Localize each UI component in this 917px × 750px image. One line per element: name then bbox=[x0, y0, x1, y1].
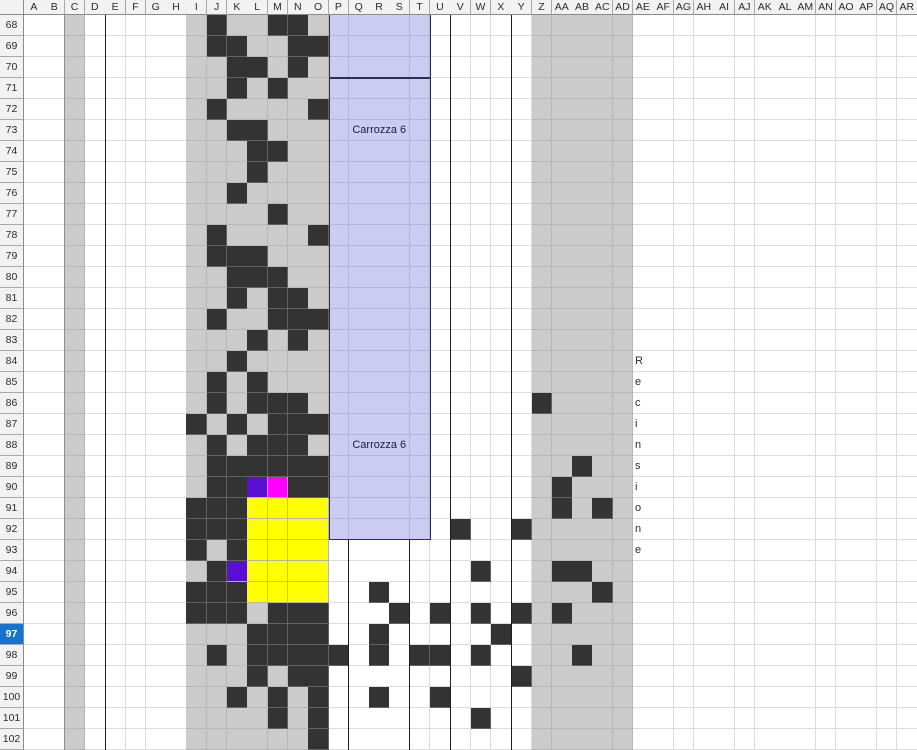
cell-J70[interactable] bbox=[207, 57, 228, 78]
cell-AI99[interactable] bbox=[714, 666, 735, 687]
cell-V68[interactable] bbox=[450, 15, 471, 36]
cell-AK75[interactable] bbox=[755, 162, 776, 183]
cell-AH100[interactable] bbox=[694, 687, 715, 708]
cell-AP71[interactable] bbox=[856, 78, 877, 99]
cell-J81[interactable] bbox=[207, 288, 228, 309]
cell-F89[interactable] bbox=[126, 456, 147, 477]
cell-AM84[interactable] bbox=[795, 351, 816, 372]
cell-Y77[interactable] bbox=[511, 204, 532, 225]
cell-AB92[interactable] bbox=[572, 519, 593, 540]
cell-L93[interactable] bbox=[247, 540, 268, 561]
cell-I88[interactable] bbox=[186, 435, 207, 456]
column-header-D[interactable]: D bbox=[85, 0, 106, 15]
cell-A101[interactable] bbox=[24, 708, 45, 729]
cell-AP95[interactable] bbox=[856, 582, 877, 603]
cell-D102[interactable] bbox=[85, 729, 106, 750]
cell-Q93[interactable] bbox=[349, 540, 370, 561]
cell-AE70[interactable] bbox=[633, 57, 654, 78]
cell-AQ98[interactable] bbox=[877, 645, 898, 666]
cell-AD70[interactable] bbox=[613, 57, 634, 78]
cell-C74[interactable] bbox=[65, 141, 86, 162]
cell-AE81[interactable] bbox=[633, 288, 654, 309]
cell-AP91[interactable] bbox=[856, 498, 877, 519]
cell-AC75[interactable] bbox=[592, 162, 613, 183]
cell-Y73[interactable] bbox=[511, 120, 532, 141]
cell-B75[interactable] bbox=[44, 162, 65, 183]
cell-Y96[interactable] bbox=[511, 603, 532, 624]
cell-I75[interactable] bbox=[186, 162, 207, 183]
cell-V83[interactable] bbox=[450, 330, 471, 351]
cell-AM69[interactable] bbox=[795, 36, 816, 57]
cell-H92[interactable] bbox=[166, 519, 187, 540]
cell-A83[interactable] bbox=[24, 330, 45, 351]
cell-R99[interactable] bbox=[369, 666, 390, 687]
cell-A78[interactable] bbox=[24, 225, 45, 246]
cell-G92[interactable] bbox=[146, 519, 167, 540]
cell-AB99[interactable] bbox=[572, 666, 593, 687]
cell-H86[interactable] bbox=[166, 393, 187, 414]
cell-AP70[interactable] bbox=[856, 57, 877, 78]
cell-AJ79[interactable] bbox=[735, 246, 756, 267]
cell-AQ78[interactable] bbox=[877, 225, 898, 246]
cell-C93[interactable] bbox=[65, 540, 86, 561]
cell-G85[interactable] bbox=[146, 372, 167, 393]
cell-AJ82[interactable] bbox=[735, 309, 756, 330]
column-header-X[interactable]: X bbox=[491, 0, 512, 15]
cell-E74[interactable] bbox=[105, 141, 126, 162]
cell-H101[interactable] bbox=[166, 708, 187, 729]
cell-Z96[interactable] bbox=[532, 603, 553, 624]
cell-AQ75[interactable] bbox=[877, 162, 898, 183]
cell-AE76[interactable] bbox=[633, 183, 654, 204]
cell-AQ68[interactable] bbox=[877, 15, 898, 36]
cell-AI74[interactable] bbox=[714, 141, 735, 162]
cell-AA74[interactable] bbox=[552, 141, 573, 162]
row-header-77[interactable]: 77 bbox=[0, 204, 24, 225]
cell-X75[interactable] bbox=[491, 162, 512, 183]
cell-AB90[interactable] bbox=[572, 477, 593, 498]
cell-AL71[interactable] bbox=[775, 78, 796, 99]
cell-AM85[interactable] bbox=[795, 372, 816, 393]
cell-AO81[interactable] bbox=[836, 288, 857, 309]
cell-K82[interactable] bbox=[227, 309, 248, 330]
cell-AC95[interactable] bbox=[592, 582, 613, 603]
cell-AI82[interactable] bbox=[714, 309, 735, 330]
cell-Y86[interactable] bbox=[511, 393, 532, 414]
cell-D76[interactable] bbox=[85, 183, 106, 204]
cell-AJ87[interactable] bbox=[735, 414, 756, 435]
cell-AR94[interactable] bbox=[897, 561, 917, 582]
cell-L71[interactable] bbox=[247, 78, 268, 99]
cell-AK88[interactable] bbox=[755, 435, 776, 456]
cell-AC102[interactable] bbox=[592, 729, 613, 750]
cell-N88[interactable] bbox=[288, 435, 309, 456]
row-header-85[interactable]: 85 bbox=[0, 372, 24, 393]
cell-H94[interactable] bbox=[166, 561, 187, 582]
row-header-101[interactable]: 101 bbox=[0, 708, 24, 729]
cell-O73[interactable] bbox=[308, 120, 329, 141]
cell-AF85[interactable] bbox=[653, 372, 674, 393]
cell-AK73[interactable] bbox=[755, 120, 776, 141]
cell-AM77[interactable] bbox=[795, 204, 816, 225]
cell-B90[interactable] bbox=[44, 477, 65, 498]
cell-B91[interactable] bbox=[44, 498, 65, 519]
cell-B76[interactable] bbox=[44, 183, 65, 204]
cell-AB70[interactable] bbox=[572, 57, 593, 78]
cell-U95[interactable] bbox=[430, 582, 451, 603]
cell-AP101[interactable] bbox=[856, 708, 877, 729]
cell-M79[interactable] bbox=[268, 246, 289, 267]
cell-M83[interactable] bbox=[268, 330, 289, 351]
cell-H78[interactable] bbox=[166, 225, 187, 246]
cell-S96[interactable] bbox=[389, 603, 410, 624]
cell-AN83[interactable] bbox=[816, 330, 837, 351]
cell-AI84[interactable] bbox=[714, 351, 735, 372]
cell-AI86[interactable] bbox=[714, 393, 735, 414]
cell-AB69[interactable] bbox=[572, 36, 593, 57]
cell-Y102[interactable] bbox=[511, 729, 532, 750]
cell-F76[interactable] bbox=[126, 183, 147, 204]
cell-U71[interactable] bbox=[430, 78, 451, 99]
row-header-92[interactable]: 92 bbox=[0, 519, 24, 540]
cell-A86[interactable] bbox=[24, 393, 45, 414]
cell-AP80[interactable] bbox=[856, 267, 877, 288]
cell-AG75[interactable] bbox=[674, 162, 695, 183]
cell-B71[interactable] bbox=[44, 78, 65, 99]
row-header-81[interactable]: 81 bbox=[0, 288, 24, 309]
cell-AI102[interactable] bbox=[714, 729, 735, 750]
cell-AA79[interactable] bbox=[552, 246, 573, 267]
cell-X70[interactable] bbox=[491, 57, 512, 78]
cell-AG73[interactable] bbox=[674, 120, 695, 141]
cell-Z83[interactable] bbox=[532, 330, 553, 351]
cell-I98[interactable] bbox=[186, 645, 207, 666]
cell-W83[interactable] bbox=[471, 330, 492, 351]
cell-AA73[interactable] bbox=[552, 120, 573, 141]
row-header-73[interactable]: 73 bbox=[0, 120, 24, 141]
cell-W102[interactable] bbox=[471, 729, 492, 750]
cell-S98[interactable] bbox=[389, 645, 410, 666]
cell-L98[interactable] bbox=[247, 645, 268, 666]
cell-V88[interactable] bbox=[450, 435, 471, 456]
cell-AO94[interactable] bbox=[836, 561, 857, 582]
cell-K90[interactable] bbox=[227, 477, 248, 498]
cell-AN73[interactable] bbox=[816, 120, 837, 141]
cell-U69[interactable] bbox=[430, 36, 451, 57]
cell-AA95[interactable] bbox=[552, 582, 573, 603]
cell-AG90[interactable] bbox=[674, 477, 695, 498]
cell-C87[interactable] bbox=[65, 414, 86, 435]
column-header-Y[interactable]: Y bbox=[511, 0, 532, 15]
cell-AR83[interactable] bbox=[897, 330, 917, 351]
cell-U100[interactable] bbox=[430, 687, 451, 708]
cell-G76[interactable] bbox=[146, 183, 167, 204]
cell-AL77[interactable] bbox=[775, 204, 796, 225]
cell-AH85[interactable] bbox=[694, 372, 715, 393]
cell-D80[interactable] bbox=[85, 267, 106, 288]
cell-F77[interactable] bbox=[126, 204, 147, 225]
cell-AK100[interactable] bbox=[755, 687, 776, 708]
cell-Y93[interactable] bbox=[511, 540, 532, 561]
cell-AN94[interactable] bbox=[816, 561, 837, 582]
cell-AB82[interactable] bbox=[572, 309, 593, 330]
cell-AF101[interactable] bbox=[653, 708, 674, 729]
cell-B74[interactable] bbox=[44, 141, 65, 162]
cell-B100[interactable] bbox=[44, 687, 65, 708]
cell-AR82[interactable] bbox=[897, 309, 917, 330]
cell-S102[interactable] bbox=[389, 729, 410, 750]
cell-U97[interactable] bbox=[430, 624, 451, 645]
cell-AF73[interactable] bbox=[653, 120, 674, 141]
cell-V92[interactable] bbox=[450, 519, 471, 540]
cell-F88[interactable] bbox=[126, 435, 147, 456]
cell-AK89[interactable] bbox=[755, 456, 776, 477]
cell-V101[interactable] bbox=[450, 708, 471, 729]
cell-H89[interactable] bbox=[166, 456, 187, 477]
cell-F74[interactable] bbox=[126, 141, 147, 162]
cell-AD83[interactable] bbox=[613, 330, 634, 351]
cell-D78[interactable] bbox=[85, 225, 106, 246]
cell-AP76[interactable] bbox=[856, 183, 877, 204]
cell-Y97[interactable] bbox=[511, 624, 532, 645]
cell-AA81[interactable] bbox=[552, 288, 573, 309]
cell-J73[interactable] bbox=[207, 120, 228, 141]
cell-M94[interactable] bbox=[268, 561, 289, 582]
cell-AC89[interactable] bbox=[592, 456, 613, 477]
cell-W76[interactable] bbox=[471, 183, 492, 204]
cell-AN99[interactable] bbox=[816, 666, 837, 687]
cell-Y71[interactable] bbox=[511, 78, 532, 99]
cell-AH68[interactable] bbox=[694, 15, 715, 36]
cell-Z71[interactable] bbox=[532, 78, 553, 99]
cell-H74[interactable] bbox=[166, 141, 187, 162]
cell-G74[interactable] bbox=[146, 141, 167, 162]
cell-AC84[interactable] bbox=[592, 351, 613, 372]
cell-W73[interactable] bbox=[471, 120, 492, 141]
cell-F90[interactable] bbox=[126, 477, 147, 498]
cell-N91[interactable] bbox=[288, 498, 309, 519]
cell-Q97[interactable] bbox=[349, 624, 370, 645]
cell-H85[interactable] bbox=[166, 372, 187, 393]
cell-P102[interactable] bbox=[329, 729, 350, 750]
cell-E97[interactable] bbox=[105, 624, 126, 645]
cell-D74[interactable] bbox=[85, 141, 106, 162]
cell-AC85[interactable] bbox=[592, 372, 613, 393]
cell-U75[interactable] bbox=[430, 162, 451, 183]
cell-C75[interactable] bbox=[65, 162, 86, 183]
cell-Z92[interactable] bbox=[532, 519, 553, 540]
cell-B79[interactable] bbox=[44, 246, 65, 267]
cell-AH81[interactable] bbox=[694, 288, 715, 309]
cell-AN88[interactable] bbox=[816, 435, 837, 456]
cell-AF100[interactable] bbox=[653, 687, 674, 708]
cell-AQ76[interactable] bbox=[877, 183, 898, 204]
cell-AH77[interactable] bbox=[694, 204, 715, 225]
cell-AB80[interactable] bbox=[572, 267, 593, 288]
cell-AN100[interactable] bbox=[816, 687, 837, 708]
cell-AE74[interactable] bbox=[633, 141, 654, 162]
cell-AI70[interactable] bbox=[714, 57, 735, 78]
cell-O99[interactable] bbox=[308, 666, 329, 687]
cell-AD92[interactable] bbox=[613, 519, 634, 540]
cell-H102[interactable] bbox=[166, 729, 187, 750]
cell-V98[interactable] bbox=[450, 645, 471, 666]
cell-Z87[interactable] bbox=[532, 414, 553, 435]
cell-Z69[interactable] bbox=[532, 36, 553, 57]
cell-D97[interactable] bbox=[85, 624, 106, 645]
cell-P96[interactable] bbox=[329, 603, 350, 624]
cell-O91[interactable] bbox=[308, 498, 329, 519]
cell-AM89[interactable] bbox=[795, 456, 816, 477]
cell-A68[interactable] bbox=[24, 15, 45, 36]
column-header-B[interactable]: B bbox=[44, 0, 65, 15]
cell-X97[interactable] bbox=[491, 624, 512, 645]
cell-O77[interactable] bbox=[308, 204, 329, 225]
cell-AN81[interactable] bbox=[816, 288, 837, 309]
cell-X74[interactable] bbox=[491, 141, 512, 162]
cell-D69[interactable] bbox=[85, 36, 106, 57]
cell-AI95[interactable] bbox=[714, 582, 735, 603]
cell-AG95[interactable] bbox=[674, 582, 695, 603]
cell-AG93[interactable] bbox=[674, 540, 695, 561]
column-header-AJ[interactable]: AJ bbox=[735, 0, 756, 15]
cell-AO84[interactable] bbox=[836, 351, 857, 372]
cell-AF90[interactable] bbox=[653, 477, 674, 498]
cell-AD99[interactable] bbox=[613, 666, 634, 687]
cell-Z99[interactable] bbox=[532, 666, 553, 687]
cell-AE101[interactable] bbox=[633, 708, 654, 729]
cell-O72[interactable] bbox=[308, 99, 329, 120]
cell-D73[interactable] bbox=[85, 120, 106, 141]
cell-AK84[interactable] bbox=[755, 351, 776, 372]
cell-AD85[interactable] bbox=[613, 372, 634, 393]
cell-B82[interactable] bbox=[44, 309, 65, 330]
cell-L88[interactable] bbox=[247, 435, 268, 456]
cell-N82[interactable] bbox=[288, 309, 309, 330]
row-header-87[interactable]: 87 bbox=[0, 414, 24, 435]
cell-R96[interactable] bbox=[369, 603, 390, 624]
cell-AP94[interactable] bbox=[856, 561, 877, 582]
cell-V94[interactable] bbox=[450, 561, 471, 582]
cell-AP75[interactable] bbox=[856, 162, 877, 183]
column-header-C[interactable]: C bbox=[65, 0, 86, 15]
cell-L92[interactable] bbox=[247, 519, 268, 540]
cell-AH93[interactable] bbox=[694, 540, 715, 561]
cell-AO93[interactable] bbox=[836, 540, 857, 561]
cell-AK80[interactable] bbox=[755, 267, 776, 288]
cell-F101[interactable] bbox=[126, 708, 147, 729]
cell-K86[interactable] bbox=[227, 393, 248, 414]
cell-E101[interactable] bbox=[105, 708, 126, 729]
cell-G79[interactable] bbox=[146, 246, 167, 267]
cell-A79[interactable] bbox=[24, 246, 45, 267]
cell-AR75[interactable] bbox=[897, 162, 917, 183]
cell-W77[interactable] bbox=[471, 204, 492, 225]
cell-Y81[interactable] bbox=[511, 288, 532, 309]
cell-AR87[interactable] bbox=[897, 414, 917, 435]
cell-AI69[interactable] bbox=[714, 36, 735, 57]
cell-X93[interactable] bbox=[491, 540, 512, 561]
cell-K72[interactable] bbox=[227, 99, 248, 120]
cell-AL87[interactable] bbox=[775, 414, 796, 435]
cell-W68[interactable] bbox=[471, 15, 492, 36]
cell-AK79[interactable] bbox=[755, 246, 776, 267]
cell-AK74[interactable] bbox=[755, 141, 776, 162]
cell-A74[interactable] bbox=[24, 141, 45, 162]
cell-O88[interactable] bbox=[308, 435, 329, 456]
cell-AF71[interactable] bbox=[653, 78, 674, 99]
cell-AJ83[interactable] bbox=[735, 330, 756, 351]
column-header-T[interactable]: T bbox=[410, 0, 431, 15]
cell-K84[interactable] bbox=[227, 351, 248, 372]
cell-D90[interactable] bbox=[85, 477, 106, 498]
cell-H81[interactable] bbox=[166, 288, 187, 309]
cell-AM81[interactable] bbox=[795, 288, 816, 309]
cell-E92[interactable] bbox=[105, 519, 126, 540]
cell-AQ85[interactable] bbox=[877, 372, 898, 393]
cell-AB87[interactable] bbox=[572, 414, 593, 435]
row-header-76[interactable]: 76 bbox=[0, 183, 24, 204]
cell-M75[interactable] bbox=[268, 162, 289, 183]
cell-Q98[interactable] bbox=[349, 645, 370, 666]
select-all-corner[interactable] bbox=[0, 0, 24, 15]
cell-X102[interactable] bbox=[491, 729, 512, 750]
cell-K99[interactable] bbox=[227, 666, 248, 687]
cell-U80[interactable] bbox=[430, 267, 451, 288]
cell-D83[interactable] bbox=[85, 330, 106, 351]
cell-AQ69[interactable] bbox=[877, 36, 898, 57]
cell-AI83[interactable] bbox=[714, 330, 735, 351]
column-header-AE[interactable]: AE bbox=[633, 0, 654, 15]
cell-R102[interactable] bbox=[369, 729, 390, 750]
cell-AK92[interactable] bbox=[755, 519, 776, 540]
cell-K71[interactable] bbox=[227, 78, 248, 99]
cell-AM75[interactable] bbox=[795, 162, 816, 183]
cell-W78[interactable] bbox=[471, 225, 492, 246]
cell-K69[interactable] bbox=[227, 36, 248, 57]
cell-AA85[interactable] bbox=[552, 372, 573, 393]
cell-AN85[interactable] bbox=[816, 372, 837, 393]
cell-AK77[interactable] bbox=[755, 204, 776, 225]
cell-AI93[interactable] bbox=[714, 540, 735, 561]
column-header-AN[interactable]: AN bbox=[816, 0, 837, 15]
cell-AP96[interactable] bbox=[856, 603, 877, 624]
cell-T100[interactable] bbox=[410, 687, 431, 708]
cell-O69[interactable] bbox=[308, 36, 329, 57]
cell-H97[interactable] bbox=[166, 624, 187, 645]
cell-P97[interactable] bbox=[329, 624, 350, 645]
cell-E72[interactable] bbox=[105, 99, 126, 120]
cell-Y88[interactable] bbox=[511, 435, 532, 456]
cell-U79[interactable] bbox=[430, 246, 451, 267]
cell-K76[interactable] bbox=[227, 183, 248, 204]
cell-AI68[interactable] bbox=[714, 15, 735, 36]
column-header-AF[interactable]: AF bbox=[653, 0, 674, 15]
cell-D88[interactable] bbox=[85, 435, 106, 456]
cell-R97[interactable] bbox=[369, 624, 390, 645]
cell-AJ100[interactable] bbox=[735, 687, 756, 708]
cell-V75[interactable] bbox=[450, 162, 471, 183]
cell-M85[interactable] bbox=[268, 372, 289, 393]
cell-AQ90[interactable] bbox=[877, 477, 898, 498]
cell-S95[interactable] bbox=[389, 582, 410, 603]
cell-AM91[interactable] bbox=[795, 498, 816, 519]
cell-Z78[interactable] bbox=[532, 225, 553, 246]
cell-AA84[interactable] bbox=[552, 351, 573, 372]
cell-AB91[interactable] bbox=[572, 498, 593, 519]
cell-F73[interactable] bbox=[126, 120, 147, 141]
cell-H72[interactable] bbox=[166, 99, 187, 120]
